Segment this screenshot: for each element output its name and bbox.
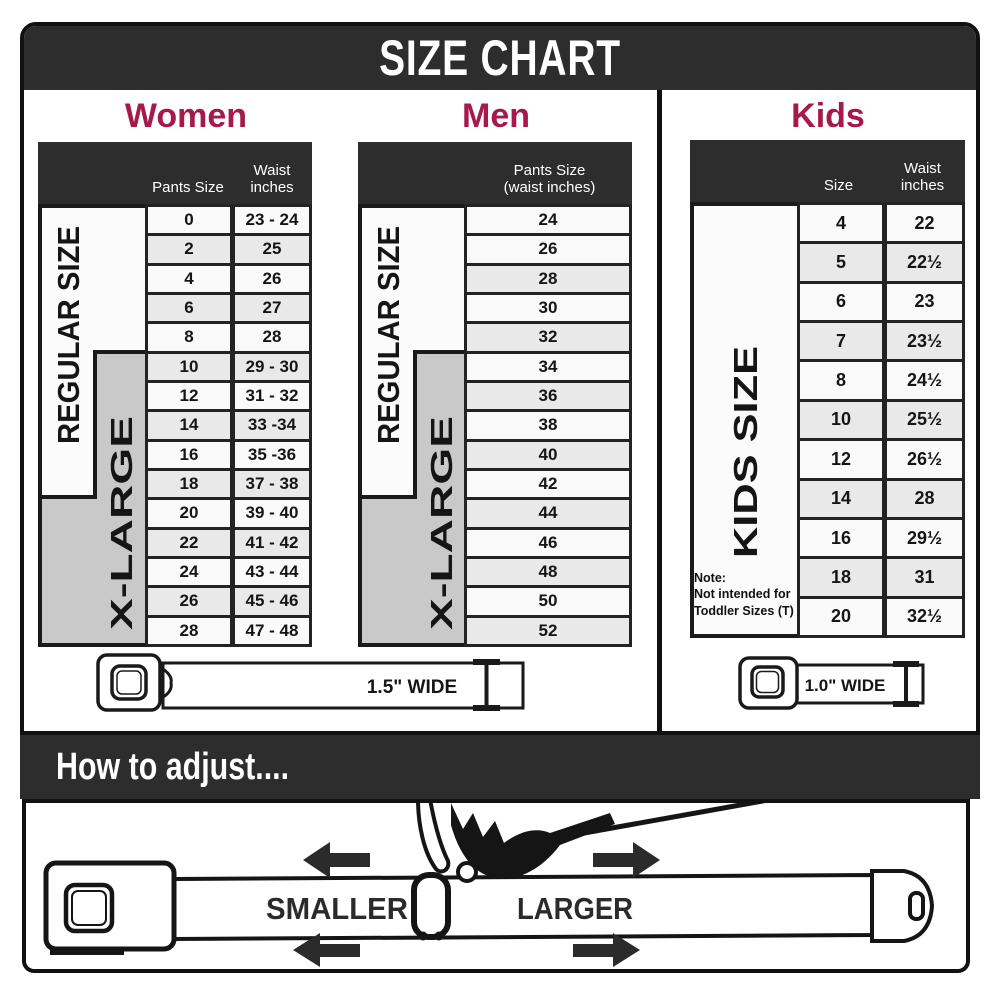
table-cell: 14 — [800, 481, 882, 517]
table-row: 1837 - 38 — [148, 471, 309, 497]
table-cell: 22 — [148, 530, 230, 556]
table-cell: 47 - 48 — [235, 618, 309, 644]
table-row: 38 — [467, 412, 629, 438]
size-chart-panel: SIZE CHART Women Men Kids Pants Size Wai… — [20, 22, 980, 735]
section-divider — [657, 90, 662, 731]
table-cell: 24 — [467, 207, 629, 233]
table-row: 2443 - 44 — [148, 559, 309, 585]
table-cell: 26 — [467, 236, 629, 262]
table-row: 52 — [467, 618, 629, 644]
table-row: 46 — [467, 530, 629, 556]
women-rows: 023 - 242254266278281029 - 301231 - 3214… — [145, 204, 312, 647]
table-cell: 6 — [800, 284, 882, 320]
table-row: 1433 -34 — [148, 412, 309, 438]
kids-waist-header: Waist inches — [880, 140, 965, 202]
table-cell: 33 -34 — [235, 412, 309, 438]
table-cell: 7 — [800, 323, 882, 359]
table-row: 1231 - 32 — [148, 383, 309, 409]
table-cell: 37 - 38 — [235, 471, 309, 497]
table-cell: 20 — [800, 599, 882, 635]
men-side-labels: REGULAR SIZE X-LARGE — [358, 204, 470, 647]
note-line: Toddler Sizes (T) — [694, 603, 798, 619]
belt-strap — [163, 663, 523, 708]
adjustment-illustration-panel: SMALLER LARGER — [22, 799, 970, 973]
table-cell: 35 -36 — [235, 442, 309, 468]
table-cell: 25½ — [887, 402, 962, 438]
table-row: 723½ — [800, 323, 962, 359]
kids-section-title: Kids — [690, 96, 966, 136]
men-rows: 242628303234363840424446485052 — [464, 204, 632, 647]
table-cell: 40 — [467, 442, 629, 468]
women-section-title: Women — [48, 96, 324, 136]
women-xlarge-label: X-LARGE — [104, 416, 139, 630]
table-cell: 22 — [887, 205, 962, 241]
table-cell: 10 — [800, 402, 882, 438]
thumb-tip — [458, 863, 476, 881]
table-row: 26 — [467, 236, 629, 262]
table-cell: 10 — [148, 354, 230, 380]
women-pants-size-header: Pants Size — [144, 142, 232, 204]
table-row: 824½ — [800, 362, 962, 398]
table-row: 2241 - 42 — [148, 530, 309, 556]
table-row: 50 — [467, 588, 629, 614]
table-cell: 45 - 46 — [235, 588, 309, 614]
table-row: 1831 — [800, 559, 962, 595]
table-cell: 29½ — [887, 520, 962, 556]
table-cell: 46 — [467, 530, 629, 556]
kids-belt-illustration: 1.0" WIDE — [733, 652, 948, 714]
table-row: 30 — [467, 295, 629, 321]
table-cell: 12 — [800, 441, 882, 477]
kids-size-vertical-label: KIDS SIZE — [727, 346, 764, 558]
table-cell: 2 — [148, 236, 230, 262]
table-cell: 36 — [467, 383, 629, 409]
table-cell: 28 — [467, 266, 629, 292]
table-row: 48 — [467, 559, 629, 585]
table-cell: 5 — [800, 244, 882, 280]
table-row: 2847 - 48 — [148, 618, 309, 644]
table-cell: 24½ — [887, 362, 962, 398]
table-row: 1428 — [800, 481, 962, 517]
table-cell: 4 — [800, 205, 882, 241]
table-cell: 48 — [467, 559, 629, 585]
adjustment-illustration: SMALLER LARGER — [26, 803, 966, 969]
table-cell: 32½ — [887, 599, 962, 635]
kids-rows: 422522½623723½824½1025½1226½14281629½183… — [797, 202, 965, 638]
table-row: 42 — [467, 471, 629, 497]
table-row: 422 — [800, 205, 962, 241]
belt-slider — [414, 875, 448, 941]
adult-belt-width-label: 1.5" WIDE — [367, 677, 457, 698]
table-cell: 34 — [467, 354, 629, 380]
table-row: 623 — [800, 284, 962, 320]
kids-size-header: Size — [797, 140, 880, 202]
larger-label: LARGER — [517, 891, 633, 926]
table-cell: 22½ — [887, 244, 962, 280]
table-row: 28 — [467, 266, 629, 292]
women-waist-header: Waist inches — [232, 142, 312, 204]
table-cell: 28 — [235, 324, 309, 350]
table-cell: 52 — [467, 618, 629, 644]
table-cell: 18 — [800, 559, 882, 595]
table-cell: 16 — [800, 520, 882, 556]
table-cell: 27 — [235, 295, 309, 321]
men-xlarge-label: X-LARGE — [424, 416, 459, 630]
table-cell: 32 — [467, 324, 629, 350]
women-regular-size-label: REGULAR SIZE — [51, 226, 86, 444]
page-title: SIZE CHART — [379, 29, 621, 87]
table-cell: 29 - 30 — [235, 354, 309, 380]
table-row: 1226½ — [800, 441, 962, 477]
table-row: 44 — [467, 500, 629, 526]
table-row: 522½ — [800, 244, 962, 280]
table-row: 023 - 24 — [148, 207, 309, 233]
table-cell: 4 — [148, 266, 230, 292]
women-size-table: Pants Size Waist inches REGULAR SIZE X-L… — [38, 142, 312, 647]
table-cell: 26 — [235, 266, 309, 292]
table-row: 32 — [467, 324, 629, 350]
table-row: 627 — [148, 295, 309, 321]
belt-end-tab — [872, 871, 932, 941]
table-cell: 39 - 40 — [235, 500, 309, 526]
men-pants-size-header: Pants Size (waist inches) — [467, 142, 632, 204]
table-row: 1029 - 30 — [148, 354, 309, 380]
table-cell: 0 — [148, 207, 230, 233]
table-row: 426 — [148, 266, 309, 292]
table-cell: 24 — [148, 559, 230, 585]
note-line: Note: — [694, 570, 798, 586]
table-row: 1629½ — [800, 520, 962, 556]
table-cell: 6 — [148, 295, 230, 321]
table-cell: 25 — [235, 236, 309, 262]
note-line: Not intended for — [694, 586, 798, 602]
table-cell: 16 — [148, 442, 230, 468]
table-row: 828 — [148, 324, 309, 350]
table-cell: 18 — [148, 471, 230, 497]
table-row: 225 — [148, 236, 309, 262]
table-row: 2645 - 46 — [148, 588, 309, 614]
table-row: 2039 - 40 — [148, 500, 309, 526]
table-cell: 23½ — [887, 323, 962, 359]
kids-size-table: Size Waist inches KIDS SIZE Note: Not in… — [690, 140, 965, 638]
table-cell: 14 — [148, 412, 230, 438]
table-cell: 26½ — [887, 441, 962, 477]
table-cell: 8 — [148, 324, 230, 350]
table-cell: 12 — [148, 383, 230, 409]
table-cell: 43 - 44 — [235, 559, 309, 585]
table-cell: 41 - 42 — [235, 530, 309, 556]
table-cell: 28 — [887, 481, 962, 517]
table-cell: 26 — [148, 588, 230, 614]
table-row: 2032½ — [800, 599, 962, 635]
table-cell: 50 — [467, 588, 629, 614]
how-to-adjust-bar: How to adjust.... — [20, 735, 980, 799]
table-cell: 23 - 24 — [235, 207, 309, 233]
men-size-table: Pants Size (waist inches) REGULAR SIZE X… — [358, 142, 632, 647]
table-cell: 31 - 32 — [235, 383, 309, 409]
women-side-labels: REGULAR SIZE X-LARGE — [38, 204, 150, 647]
smaller-label: SMALLER — [266, 891, 408, 926]
table-cell: 28 — [148, 618, 230, 644]
table-cell: 8 — [800, 362, 882, 398]
kids-belt-width-label: 1.0" WIDE — [805, 676, 886, 695]
table-cell: 38 — [467, 412, 629, 438]
table-row: 34 — [467, 354, 629, 380]
table-row: 1635 -36 — [148, 442, 309, 468]
men-section-title: Men — [358, 96, 634, 136]
table-cell: 30 — [467, 295, 629, 321]
title-bar: SIZE CHART — [24, 26, 976, 90]
table-cell: 31 — [887, 559, 962, 595]
index-finger — [418, 803, 448, 871]
table-row: 36 — [467, 383, 629, 409]
table-row: 40 — [467, 442, 629, 468]
table-cell: 23 — [887, 284, 962, 320]
adult-belt-illustration: 1.5" WIDE — [95, 652, 525, 714]
belt-buckle — [46, 863, 174, 955]
table-row: 24 — [467, 207, 629, 233]
table-cell: 20 — [148, 500, 230, 526]
table-row: 1025½ — [800, 402, 962, 438]
men-regular-size-label: REGULAR SIZE — [371, 226, 406, 444]
table-cell: 42 — [467, 471, 629, 497]
size-chart-page: SIZE CHART Women Men Kids Pants Size Wai… — [0, 0, 1000, 1000]
kids-note: Note: Not intended for Toddler Sizes (T) — [694, 570, 798, 619]
how-to-adjust-title: How to adjust.... — [56, 746, 289, 789]
hand-illustration — [418, 803, 796, 881]
table-cell: 44 — [467, 500, 629, 526]
